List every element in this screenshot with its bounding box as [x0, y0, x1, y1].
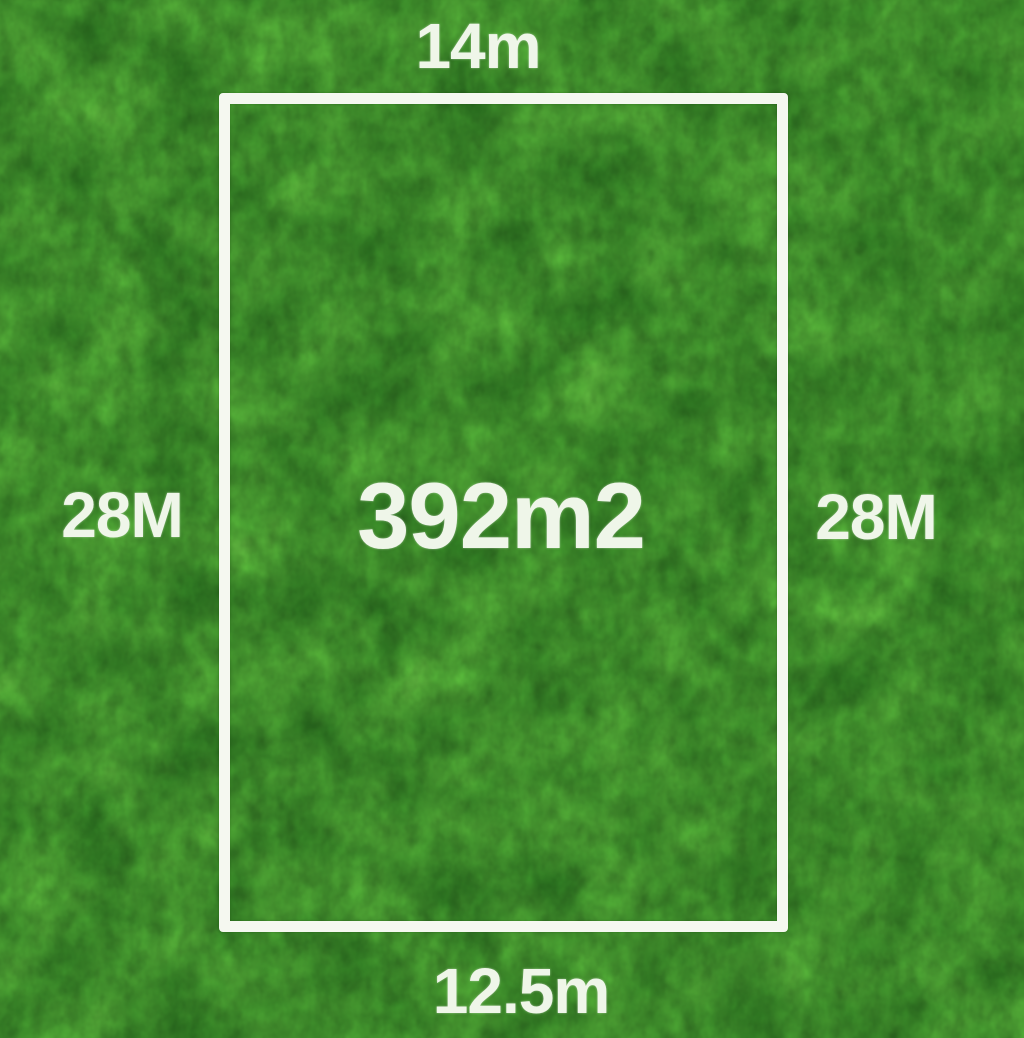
right-depth-label: 28M [815, 480, 937, 554]
top-width-label: 14m [415, 9, 540, 83]
land-lot-diagram: 14m 392m2 28M 28M 12.5m [0, 0, 1024, 1038]
lot-area-label: 392m2 [357, 462, 645, 570]
bottom-width-label: 12.5m [433, 954, 609, 1028]
left-depth-label: 28M [61, 478, 183, 552]
